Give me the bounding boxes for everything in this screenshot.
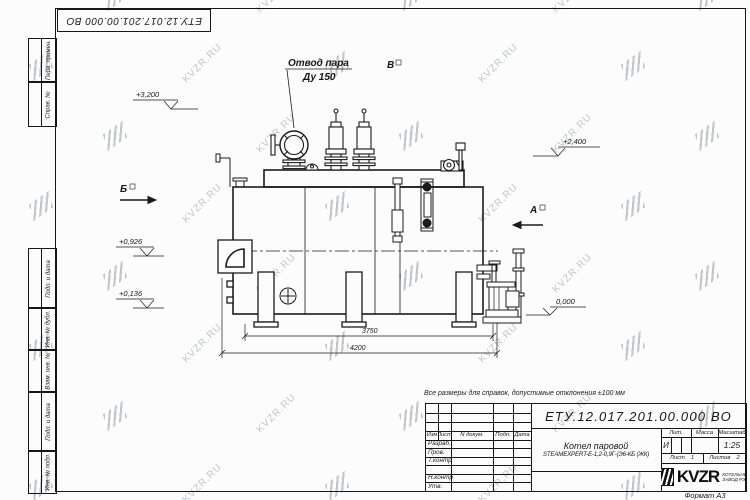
kvzr-brand-name: KVZR [677, 467, 719, 487]
tb-sheets-cell: Листов 2 [703, 453, 746, 463]
tb-sheets-value: 2 [736, 455, 739, 461]
tb-sheets-label: Листов [709, 455, 730, 461]
tb-row-razrab: Разраб. [426, 440, 453, 449]
product-model: STEAMEXPERT-Е-1,2-0,9Г-(Э6-КБ (ЖК) [543, 451, 649, 458]
kvzr-logo-icon [661, 468, 674, 486]
tb-col-list: Лист [438, 431, 451, 440]
tb-row-nkontr: Н.контр [426, 474, 453, 483]
tolerance-note: Все размеры для справок, допустимые откл… [424, 390, 625, 397]
tb-sheet-label: Лист [670, 455, 685, 461]
title-block: Изм Лист N докум. Подп. Дата Разраб. Про… [425, 403, 747, 492]
company-logo-cell: KVZR КОТЕЛЬНЫЙ ЗАВОД РЭП [661, 463, 746, 491]
tb-lit-value: И [661, 437, 671, 453]
tb-lit-label: Лит. [661, 428, 691, 437]
title-block-doc-number: ЕТУ.12.017.201.00.000 ВО [531, 404, 746, 428]
format-label: Формат А3 [655, 491, 750, 500]
tb-col-podp: Подп. [493, 431, 513, 440]
tb-row-prov: Пров. [426, 448, 453, 457]
tb-col-data: Дата [513, 431, 531, 440]
tb-sheet-cell: Лист 1 [661, 453, 703, 463]
margin-field-inv-dubl: Инв. № дубл. [28, 307, 57, 351]
product-name: Котел паровой [564, 441, 629, 451]
margin-field-inv-podl: Инв. № подл. [28, 450, 57, 494]
tb-mass-label: Масса [691, 428, 718, 437]
tb-scale-value: 1:25 [718, 437, 746, 453]
corner-doc-number-box: ЕТУ.12.017.201.00.000 ВО [57, 9, 211, 32]
margin-field-podp-data-1: Подп. и дата [28, 248, 57, 309]
margin-field-podp-data-2: Подп. и дата [28, 391, 57, 452]
tb-row-utv: Утв. [426, 482, 453, 491]
drawing-sheet: KVZR.RUKVZR.RUKVZR.RUKVZR.RUKVZR.RUKVZR.… [0, 0, 750, 500]
corner-doc-number: ЕТУ.12.017.201.00.000 ВО [66, 15, 202, 26]
tb-sheet-value: 1 [691, 455, 694, 461]
kvzr-brand-subtitle: КОТЕЛЬНЫЙ ЗАВОД РЭП [722, 472, 746, 483]
margin-field-sprav-no: Справ. № [28, 82, 57, 127]
tb-scale-label: Масштаб [718, 428, 746, 437]
tb-col-ndokum: N докум. [451, 431, 493, 440]
tb-row-tkontr: Т.контр [426, 457, 453, 466]
tb-row-blank [426, 465, 453, 474]
margin-field-vzam-inv: Взам. инв. № [28, 349, 57, 393]
product-name-cell: Котел паровой STEAMEXPERT-Е-1,2-0,9Г-(Э6… [531, 428, 661, 471]
margin-field-perv-primen: Перв. примен. [28, 38, 57, 82]
tb-col-izm: Изм [426, 431, 438, 440]
